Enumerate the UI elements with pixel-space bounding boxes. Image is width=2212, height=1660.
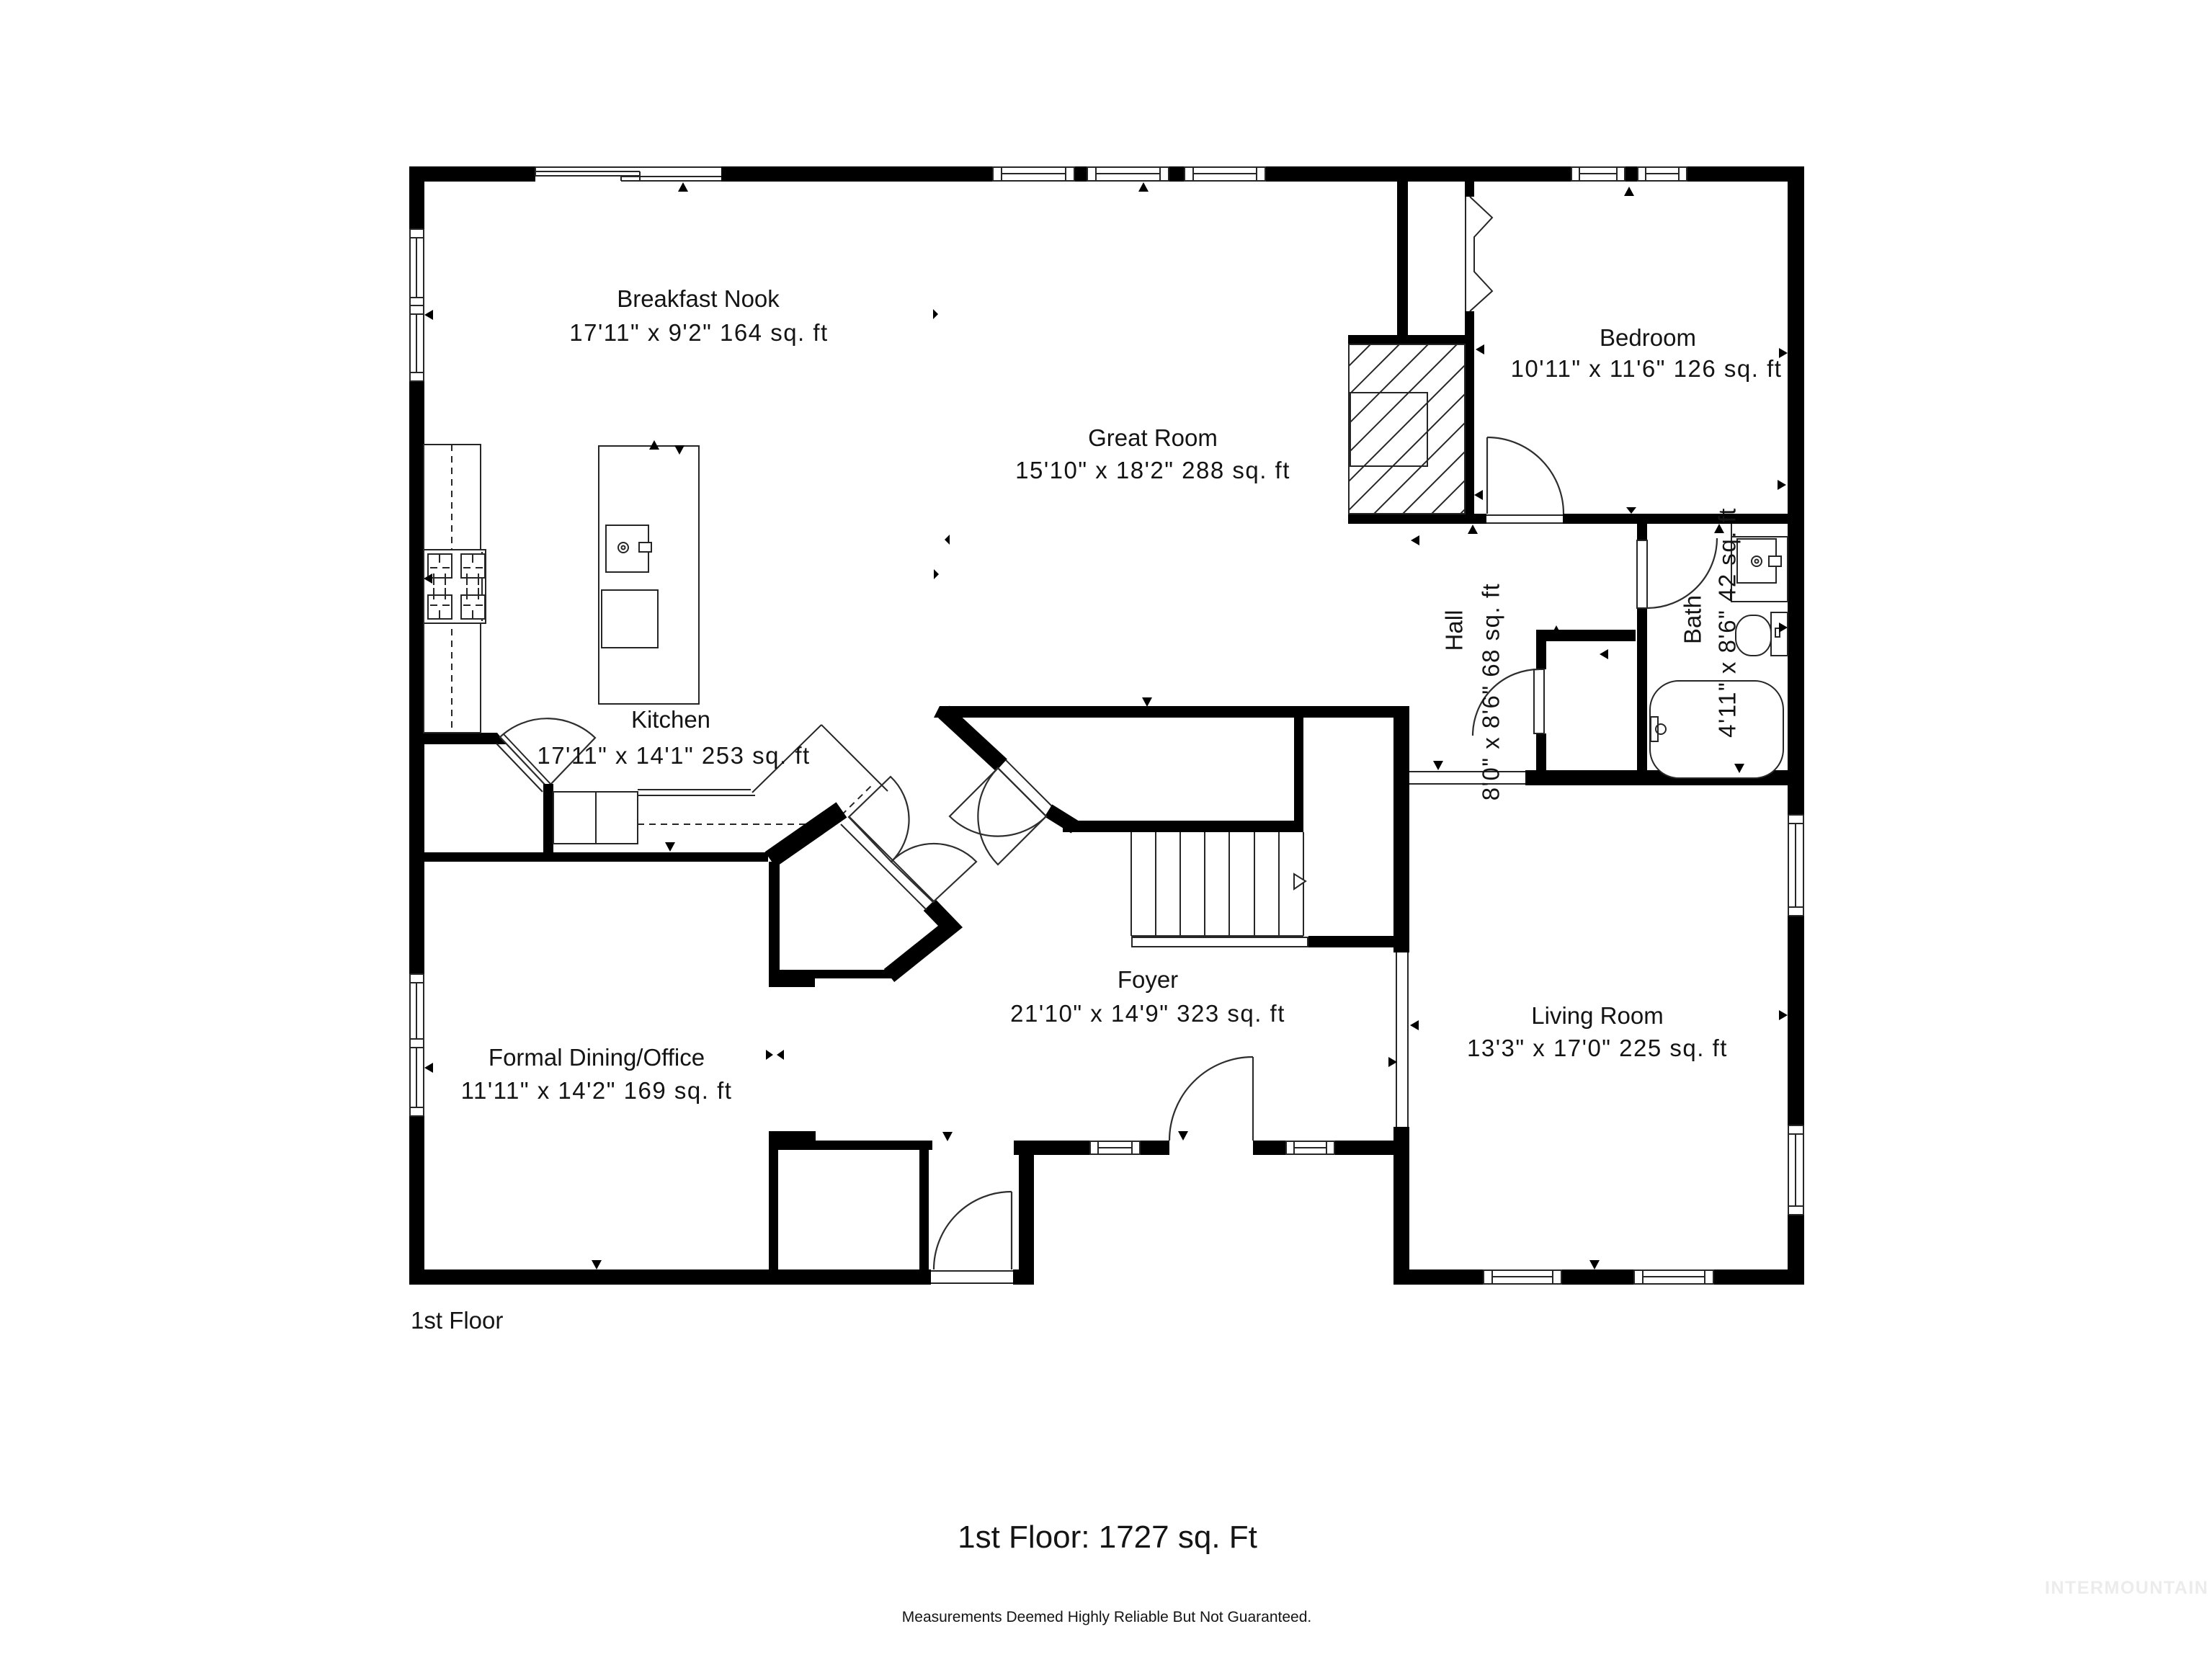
svg-text:1st Floor: 1st Floor [411, 1307, 503, 1334]
svg-text:17'11" x 14'1" 253 sq. ft: 17'11" x 14'1" 253 sq. ft [537, 742, 810, 769]
svg-text:Kitchen: Kitchen [631, 706, 710, 733]
svg-text:1st Floor: 1727 sq. Ft: 1st Floor: 1727 sq. Ft [958, 1520, 1257, 1555]
svg-text:11'11" x 14'2" 169 sq. ft: 11'11" x 14'2" 169 sq. ft [461, 1077, 733, 1104]
svg-text:10'11" x 11'6" 126 sq. ft: 10'11" x 11'6" 126 sq. ft [1511, 355, 1783, 382]
svg-text:Great Room: Great Room [1088, 424, 1218, 451]
svg-text:Bath: Bath [1680, 595, 1706, 644]
svg-text:21'10" x 14'9" 323 sq. ft: 21'10" x 14'9" 323 sq. ft [1010, 1000, 1285, 1027]
svg-text:Hall: Hall [1441, 610, 1468, 651]
svg-text:8'0" x 8'6" 68 sq. ft: 8'0" x 8'6" 68 sq. ft [1478, 583, 1504, 800]
svg-text:INTERMOUNTAIN: INTERMOUNTAIN [2045, 1578, 2208, 1598]
svg-text:4'11" x 8'6" 42 sq. ft: 4'11" x 8'6" 42 sq. ft [1714, 507, 1741, 738]
svg-text:Living Room: Living Room [1531, 1002, 1663, 1029]
svg-text:Foyer: Foyer [1118, 966, 1178, 993]
svg-text:17'11" x 9'2" 164 sq. ft: 17'11" x 9'2" 164 sq. ft [569, 319, 828, 346]
svg-text:Bedroom: Bedroom [1600, 324, 1696, 351]
svg-text:Measurements Deemed Highly Rel: Measurements Deemed Highly Reliable But … [902, 1609, 1311, 1625]
svg-text:15'10" x 18'2" 288 sq. ft: 15'10" x 18'2" 288 sq. ft [1015, 457, 1290, 483]
svg-text:Breakfast Nook: Breakfast Nook [617, 285, 780, 312]
svg-text:13'3" x 17'0" 225 sq. ft: 13'3" x 17'0" 225 sq. ft [1467, 1035, 1728, 1061]
svg-text:Formal Dining/Office: Formal Dining/Office [489, 1044, 705, 1071]
